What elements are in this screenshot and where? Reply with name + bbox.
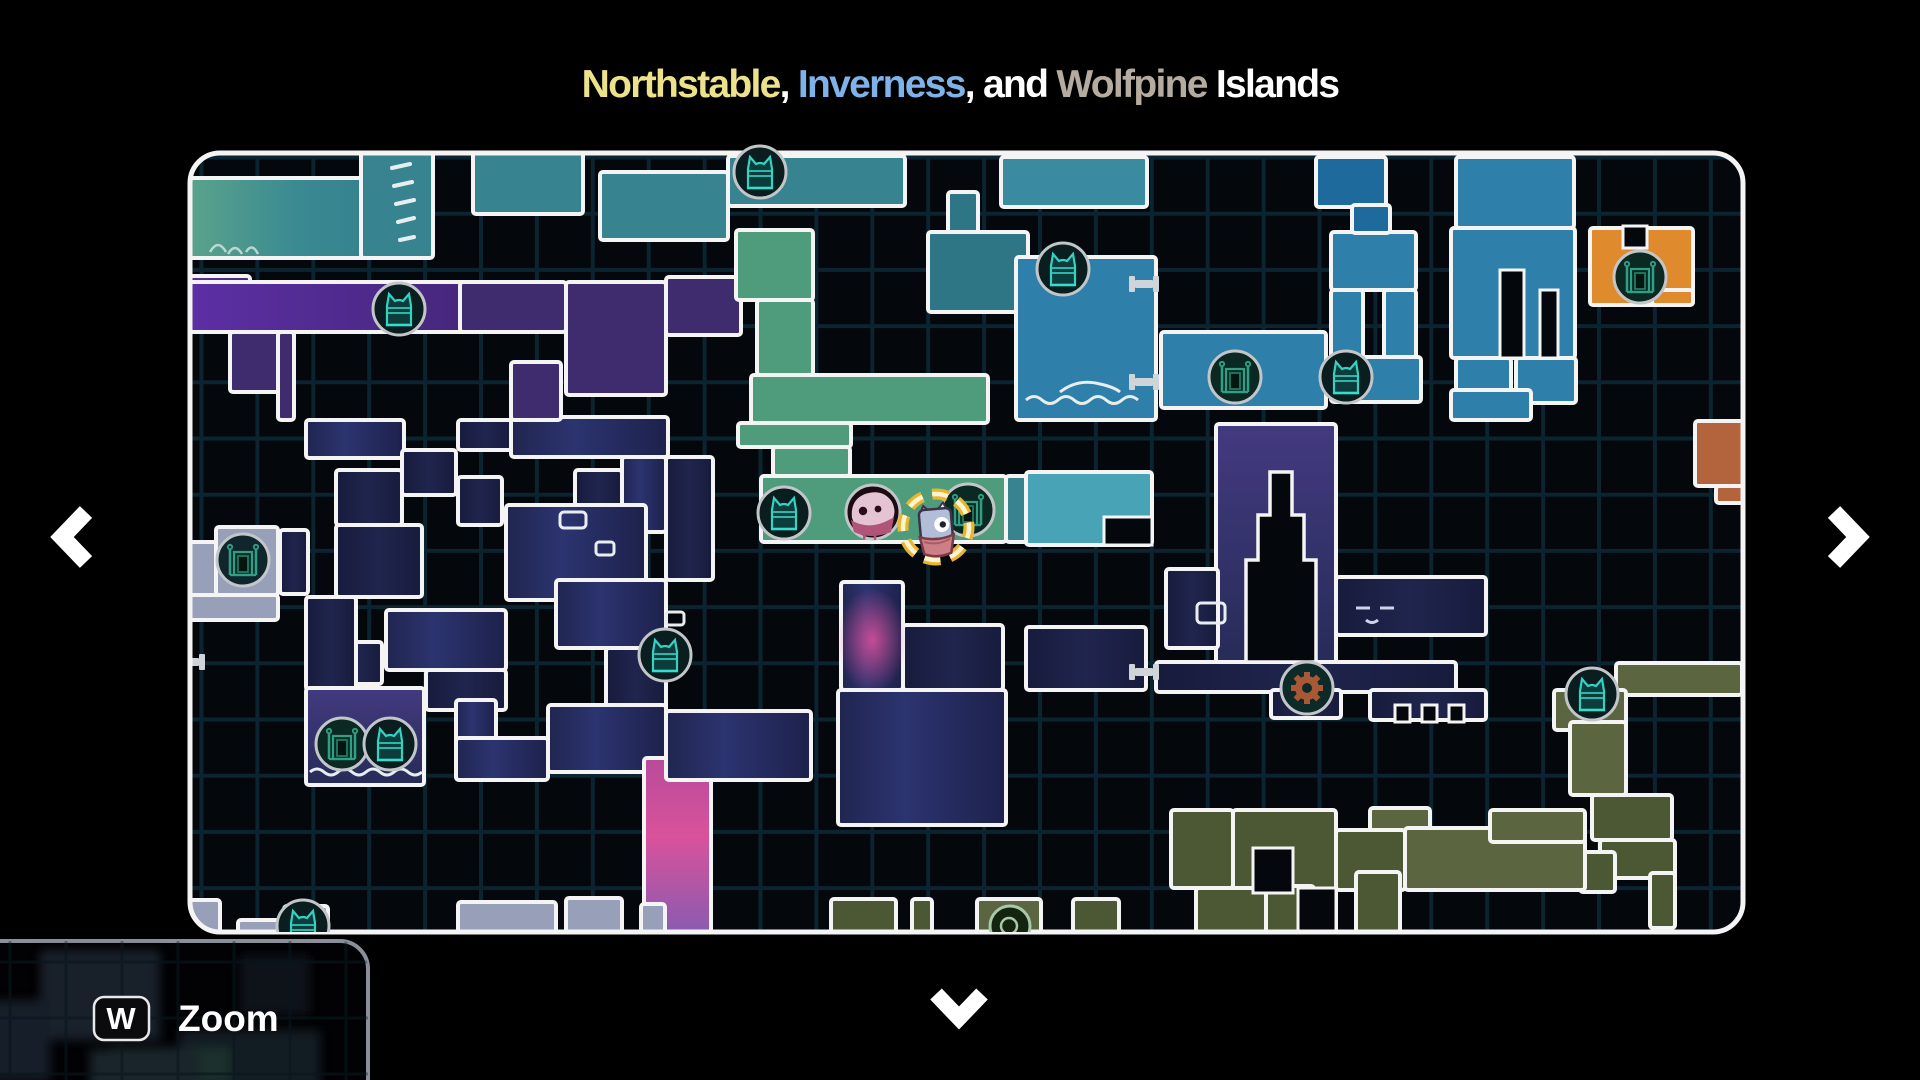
svg-text:Northstable, Inverness, and Wo: Northstable, Inverness, and Wolfpine Isl…: [582, 63, 1340, 106]
svg-text:W: W: [106, 1001, 136, 1036]
svg-text:Zoom: Zoom: [178, 998, 279, 1039]
